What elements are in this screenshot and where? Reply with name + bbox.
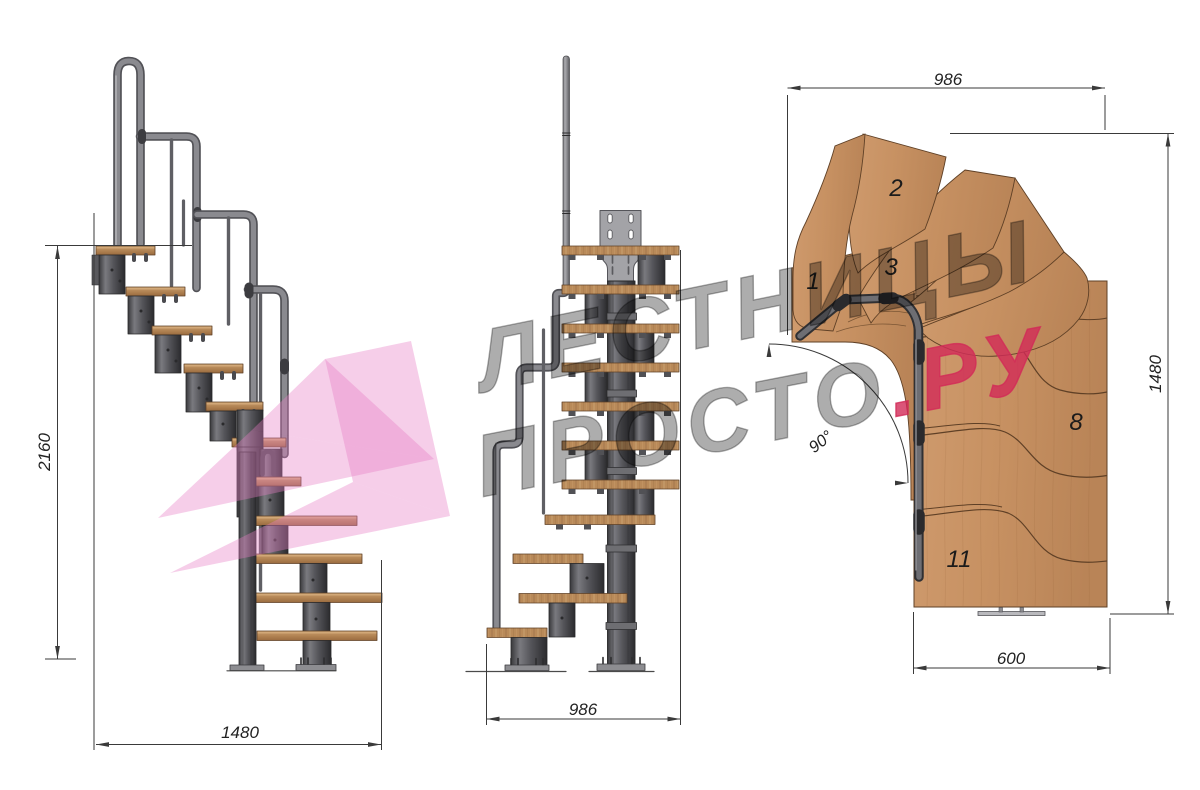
svg-text:986: 986 [569,700,598,719]
svg-text:11: 11 [947,546,972,573]
svg-text:986: 986 [934,70,963,89]
svg-text:1480: 1480 [221,723,259,742]
svg-text:2160: 2160 [35,433,54,472]
svg-text:1480: 1480 [1146,355,1165,393]
svg-text:600: 600 [997,649,1026,668]
svg-text:2: 2 [888,175,902,202]
svg-text:8: 8 [1069,409,1083,436]
